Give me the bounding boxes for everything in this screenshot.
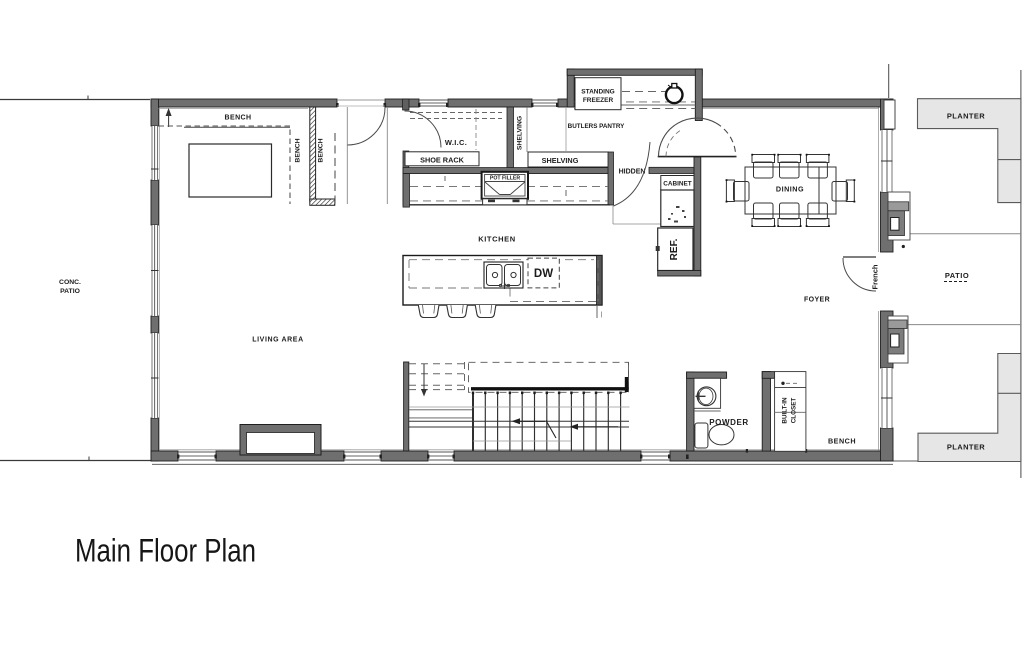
svg-text:SHOE RACK: SHOE RACK [420, 156, 465, 165]
svg-text:SHELVING: SHELVING [542, 156, 579, 165]
svg-text:SHELVING: SHELVING [517, 116, 524, 150]
svg-text:Main Floor Plan: Main Floor Plan [75, 533, 256, 569]
svg-text:BENCH: BENCH [318, 138, 325, 162]
svg-text:REF.: REF. [669, 238, 680, 260]
svg-text:STANDING: STANDING [581, 89, 614, 96]
svg-text:CLOSET: CLOSET [791, 398, 798, 424]
svg-text:FREEZER: FREEZER [583, 97, 614, 104]
svg-text:FOYER: FOYER [804, 297, 830, 304]
svg-text:DW: DW [534, 268, 553, 280]
svg-text:PLANTER: PLANTER [947, 443, 985, 452]
svg-text:BUILT-IN: BUILT-IN [782, 397, 789, 424]
svg-text:BENCH: BENCH [295, 138, 302, 162]
svg-text:BUTLERS PANTRY: BUTLERS PANTRY [568, 123, 625, 130]
svg-text:W.I.C.: W.I.C. [445, 138, 467, 147]
svg-text:PATIO: PATIO [60, 288, 80, 295]
svg-text:BENCH: BENCH [828, 437, 856, 446]
svg-text:BENCH: BENCH [225, 115, 252, 122]
svg-text:POWDER: POWDER [709, 418, 749, 427]
svg-text:KITCHEN: KITCHEN [478, 235, 516, 244]
svg-text:PLANTER: PLANTER [947, 112, 985, 121]
svg-text:POT FILLER: POT FILLER [490, 176, 521, 182]
svg-text:HIDDEN: HIDDEN [619, 169, 646, 176]
svg-text:PATIO: PATIO [945, 271, 969, 280]
svg-text:DINING: DINING [776, 185, 804, 194]
svg-text:CONC.: CONC. [59, 279, 81, 286]
svg-text:French: French [871, 264, 880, 289]
svg-text:CABINET: CABINET [663, 181, 691, 188]
svg-text:LIVING AREA: LIVING AREA [252, 337, 303, 344]
